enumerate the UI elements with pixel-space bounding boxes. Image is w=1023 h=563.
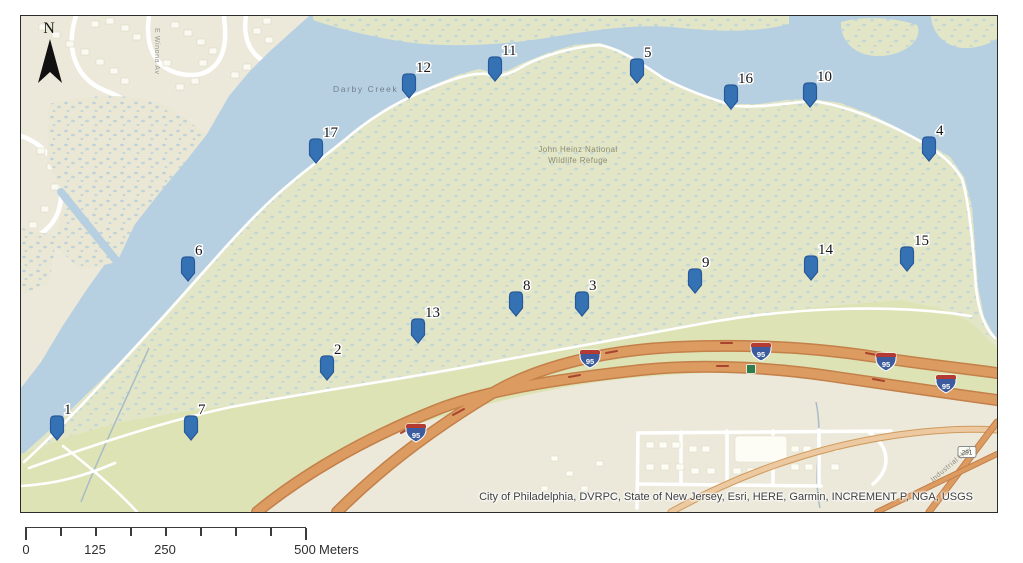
site-marker-label: 4 — [936, 123, 944, 139]
site-marker-label: 1 — [64, 402, 72, 418]
interstate-95-label: 95 — [586, 357, 594, 366]
site-marker-label: 12 — [416, 60, 431, 76]
interstate-95-label: 95 — [882, 360, 890, 369]
exit-sign — [747, 365, 756, 374]
site-marker-label: 8 — [523, 278, 531, 294]
scale-bar: 0 125 250 500 Meters — [25, 527, 385, 561]
site-marker-label: 9 — [702, 255, 710, 271]
site-marker-label: 16 — [738, 71, 754, 87]
interstate-95-label: 95 — [757, 350, 765, 359]
interstate-95-label: 95 — [412, 431, 420, 440]
creek-label: Darby Creek — [333, 84, 398, 94]
scale-label-500: 500 — [294, 542, 316, 557]
site-marker-label: 6 — [195, 243, 203, 259]
scale-unit-label: Meters — [319, 542, 359, 557]
map-canvas: 291 Darby Creek John Heinz National Wild… — [20, 15, 998, 513]
site-marker-label: 10 — [817, 69, 832, 85]
refuge-label-line1: John Heinz National — [538, 145, 617, 154]
map-figure: 291 Darby Creek John Heinz National Wild… — [0, 0, 1023, 563]
interstate-95-label: 95 — [942, 382, 950, 391]
scale-label-0: 0 — [22, 542, 29, 557]
site-marker-label: 5 — [644, 45, 652, 61]
site-marker-label: 15 — [914, 233, 929, 249]
site-marker-label: 3 — [589, 278, 597, 294]
site-marker-label: 17 — [323, 125, 339, 141]
basemap-graphic: 291 Darby Creek John Heinz National Wild… — [21, 16, 997, 512]
north-arrow-icon — [29, 37, 69, 89]
site-marker-label: 11 — [502, 43, 516, 59]
north-arrow: N — [29, 21, 69, 94]
site-marker-label: 14 — [818, 242, 834, 258]
site-marker-label: 7 — [198, 402, 206, 418]
scale-label-250: 250 — [154, 542, 176, 557]
north-label: N — [29, 21, 69, 37]
map-attribution: City of Philadelphia, DVRPC, State of Ne… — [479, 491, 973, 503]
scale-label-125: 125 — [84, 542, 106, 557]
site-marker-label: 13 — [425, 305, 440, 321]
refuge-label-line2: Wildlife Refuge — [548, 156, 608, 165]
winona-street-label: E Winona Av — [153, 28, 160, 75]
site-marker-label: 2 — [334, 342, 342, 358]
